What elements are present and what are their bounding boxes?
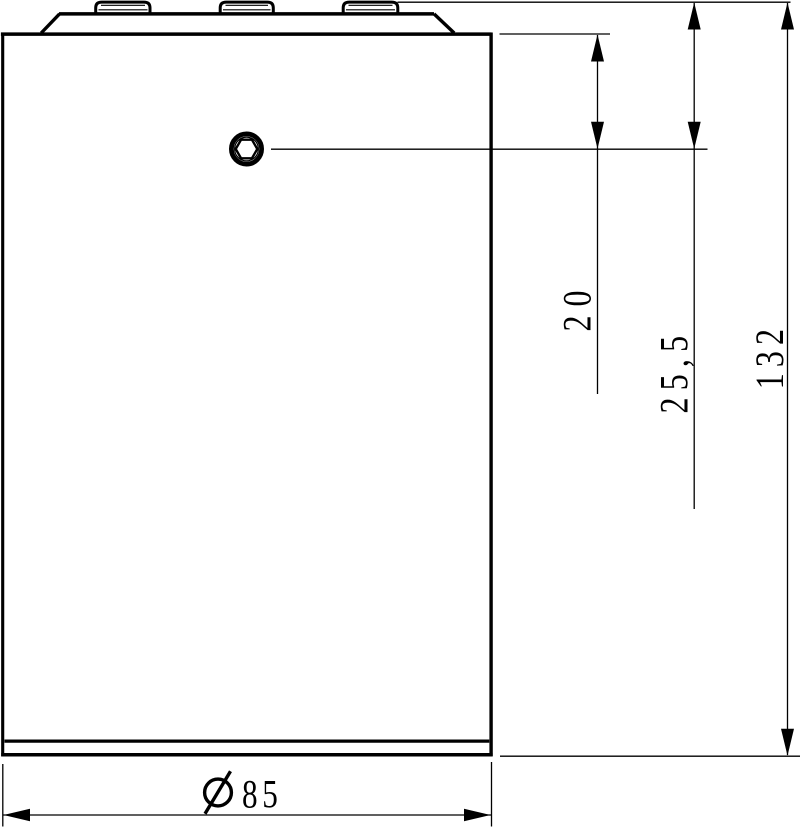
svg-text:132: 132 bbox=[748, 323, 792, 389]
svg-text:85: 85 bbox=[242, 772, 283, 817]
svg-text:20: 20 bbox=[555, 282, 599, 332]
svg-text:25,5: 25,5 bbox=[652, 329, 696, 414]
